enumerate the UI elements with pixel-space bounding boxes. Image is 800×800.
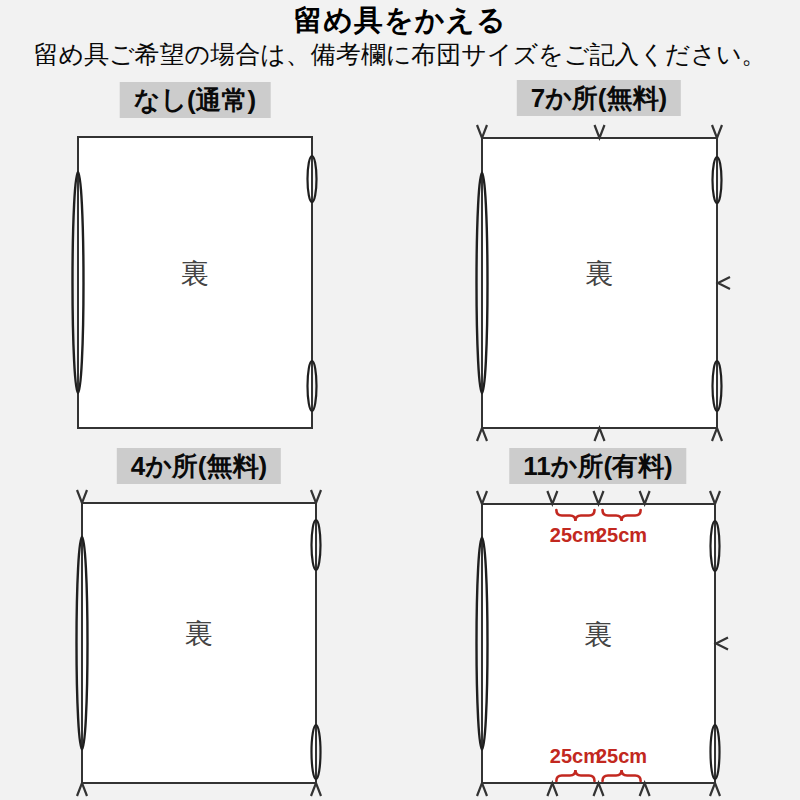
futon-back-diagram: 裏25cm25cm25cm25cm [400, 441, 800, 800]
diagram-option-4-places: 裏 4か所(無料) [0, 441, 400, 800]
fastener-mark-bottom [311, 783, 321, 796]
fastener-mark-bottom [547, 783, 557, 796]
fastener-mark-bottom [477, 783, 487, 796]
fastener-mark-top [77, 490, 87, 503]
option-label: 11か所(有料) [509, 448, 686, 484]
fastener-mark-bottom [640, 783, 650, 796]
fastener-mark-bottom [595, 428, 605, 441]
fastener-mark-top [311, 490, 321, 503]
fastener-mark-top [710, 491, 720, 504]
dimension-label: 25cm [596, 524, 647, 546]
page-title: 留め具をかえる [0, 2, 800, 39]
fastener-mark-top [594, 491, 604, 504]
fastener-mark-bottom [710, 783, 720, 796]
dimension-label: 25cm [550, 745, 601, 767]
diagram-option-none: 裏 なし(通常) [0, 78, 400, 448]
back-label: 裏 [586, 258, 614, 289]
fastener-mark-bottom [594, 783, 604, 796]
fastener-mark-right [716, 638, 728, 650]
futon-back-diagram: 裏 [400, 78, 800, 448]
fastener-mark-top [547, 491, 557, 504]
back-label: 裏 [585, 619, 613, 650]
fastener-mark-top [640, 491, 650, 504]
fastener-mark-right [718, 277, 730, 289]
futon-back-diagram: 裏 [0, 441, 400, 800]
back-label: 裏 [185, 618, 213, 649]
back-label: 裏 [181, 258, 209, 289]
option-label: 4か所(無料) [117, 448, 281, 484]
page-subtitle: 留め具ご希望の場合は、備考欄に布団サイズをご記入ください。 [0, 39, 800, 70]
fastener-mark-bottom [477, 428, 487, 441]
fastener-mark-top [477, 491, 487, 504]
option-label: 7か所(無料) [517, 80, 681, 116]
fastener-mark-bottom [712, 428, 722, 441]
diagram-option-11-places: 裏25cm25cm25cm25cm 11か所(有料) [400, 441, 800, 800]
diagram-option-7-places: 裏 7か所(無料) [400, 78, 800, 448]
fastener-mark-bottom [77, 783, 87, 796]
fastener-mark-top [712, 125, 722, 138]
option-label: なし(通常) [120, 82, 271, 118]
fastener-mark-top [477, 125, 487, 138]
fastener-mark-top [595, 125, 605, 138]
dimension-label: 25cm [550, 524, 601, 546]
futon-back-diagram: 裏 [0, 78, 400, 448]
dimension-label: 25cm [596, 745, 647, 767]
